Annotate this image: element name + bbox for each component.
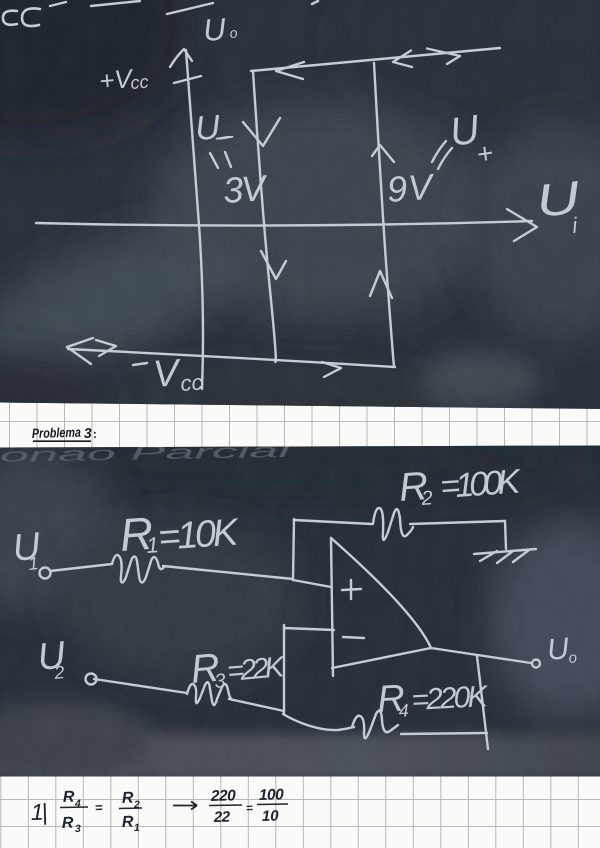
svg-text:=: = bbox=[95, 800, 103, 815]
svg-text:1: 1 bbox=[27, 553, 39, 574]
svg-text:4: 4 bbox=[74, 798, 81, 810]
svg-text:R: R bbox=[122, 814, 134, 831]
svg-text:o: o bbox=[229, 24, 238, 41]
svg-text:100: 100 bbox=[259, 786, 285, 804]
svg-text:1|: 1| bbox=[30, 799, 46, 825]
svg-text:Problema: Problema bbox=[32, 425, 82, 441]
svg-text:cc: cc bbox=[180, 370, 204, 396]
svg-text:2: 2 bbox=[52, 662, 65, 683]
svg-text:o: o bbox=[568, 649, 578, 667]
svg-text:22: 22 bbox=[213, 809, 231, 826]
svg-text:2: 2 bbox=[420, 487, 434, 510]
svg-text:=22K: =22K bbox=[226, 651, 287, 688]
svg-text:U: U bbox=[202, 11, 227, 48]
svg-text:220: 220 bbox=[210, 787, 237, 805]
svg-text:3: 3 bbox=[84, 425, 92, 441]
svg-text:3V: 3V bbox=[222, 167, 270, 211]
svg-text:2: 2 bbox=[133, 799, 140, 811]
svg-text:10: 10 bbox=[262, 808, 280, 825]
svg-text:1: 1 bbox=[134, 822, 140, 834]
svg-text:=220K: =220K bbox=[411, 680, 491, 717]
svg-text:4: 4 bbox=[398, 700, 409, 720]
svg-text:=100K: =100K bbox=[439, 462, 523, 506]
svg-text:=10K: =10K bbox=[157, 511, 241, 559]
svg-text:9V: 9V bbox=[386, 166, 437, 210]
svg-text:R: R bbox=[62, 815, 74, 832]
svg-text:3: 3 bbox=[75, 823, 81, 835]
svg-text:U: U bbox=[546, 632, 571, 667]
svg-text:3: 3 bbox=[214, 670, 227, 693]
svg-text:U: U bbox=[194, 108, 222, 148]
svg-text:cc: cc bbox=[130, 71, 150, 92]
svg-text:R: R bbox=[63, 789, 75, 806]
svg-text:=: = bbox=[246, 801, 253, 815]
svg-text::: : bbox=[93, 427, 97, 441]
svg-text:R: R bbox=[122, 790, 134, 807]
